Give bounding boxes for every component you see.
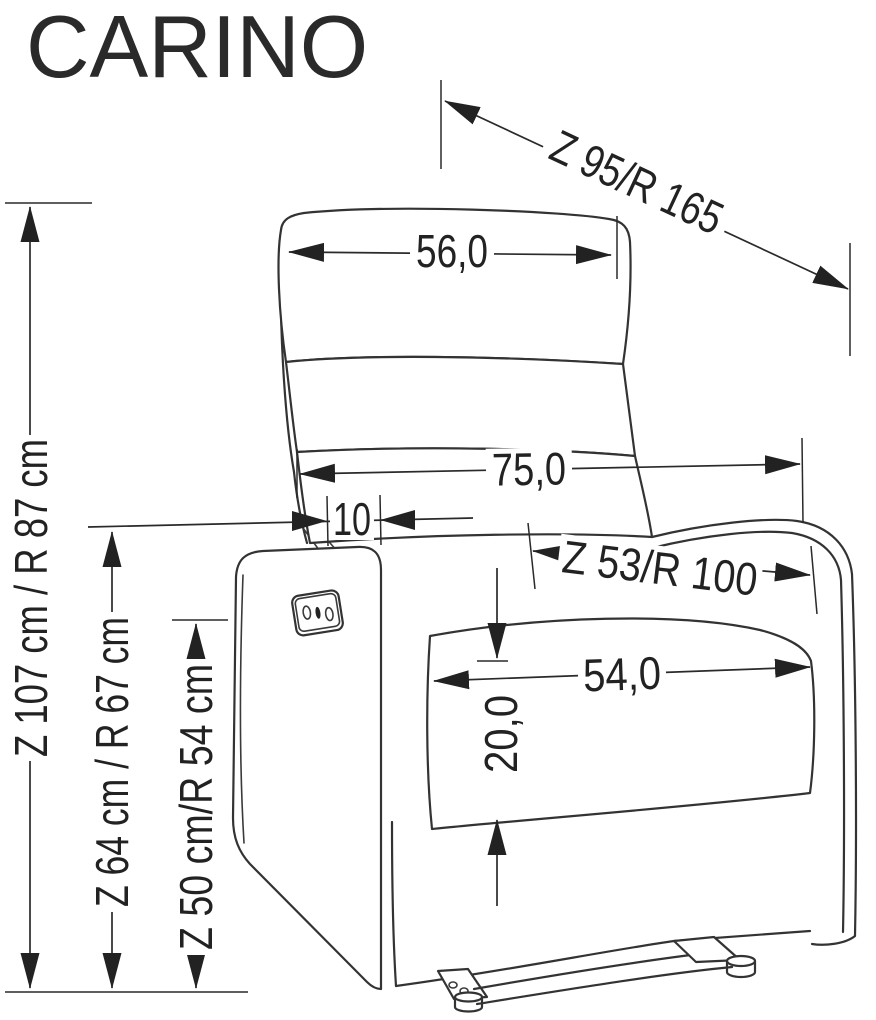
label-seat-height: Z 50 cm/R 54 cm (170, 659, 222, 955)
dim-text-armrest-height: Z 64 cm / R 67 cm (86, 617, 138, 907)
tick-backrest-right (802, 438, 803, 523)
recliner-drawing: CARINO Z 95/R 165 56,0 75,0 10 Z 53/R 10… (0, 0, 876, 1020)
dim-text-cushion-thickness: 20,0 (475, 695, 527, 773)
control-panel (291, 589, 344, 636)
dim-text-seat-diagonal: Z 53/R 100 (560, 530, 761, 605)
backrest-cushion-middle (286, 357, 635, 456)
tick-seat-diag-right (811, 546, 817, 614)
label-total-height: Z 107 cm / R 87 cm (5, 435, 57, 761)
dimension-diagram: CARINO Z 95/R 165 56,0 75,0 10 Z 53/R 10… (0, 0, 876, 1020)
recliner-chair (233, 209, 856, 1012)
label-seat-width: 54,0 (577, 646, 667, 701)
label-seat-diagonal: Z 53/R 100 (556, 530, 765, 606)
label-backrest-width: 75,0 (486, 442, 573, 495)
label-cushion-thickness: 20,0 (475, 690, 527, 778)
dim-text-backrest-width: 75,0 (492, 442, 567, 495)
base-rail (438, 937, 755, 1012)
label-armrest-height: Z 64 cm / R 67 cm (86, 612, 138, 912)
dim-text-seat-width: 54,0 (582, 647, 662, 702)
label-headrest-width: 56,0 (410, 225, 494, 277)
dim-text-back-offset: 10 (333, 493, 371, 545)
dim-text-headrest-width: 56,0 (416, 225, 488, 277)
dim-text-seat-height: Z 50 cm/R 54 cm (170, 664, 222, 950)
dim-text-total-height: Z 107 cm / R 87 cm (5, 439, 57, 757)
page-title: CARINO (26, 0, 368, 96)
front-foot (455, 993, 482, 1012)
label-back-offset: 10 (330, 493, 374, 545)
